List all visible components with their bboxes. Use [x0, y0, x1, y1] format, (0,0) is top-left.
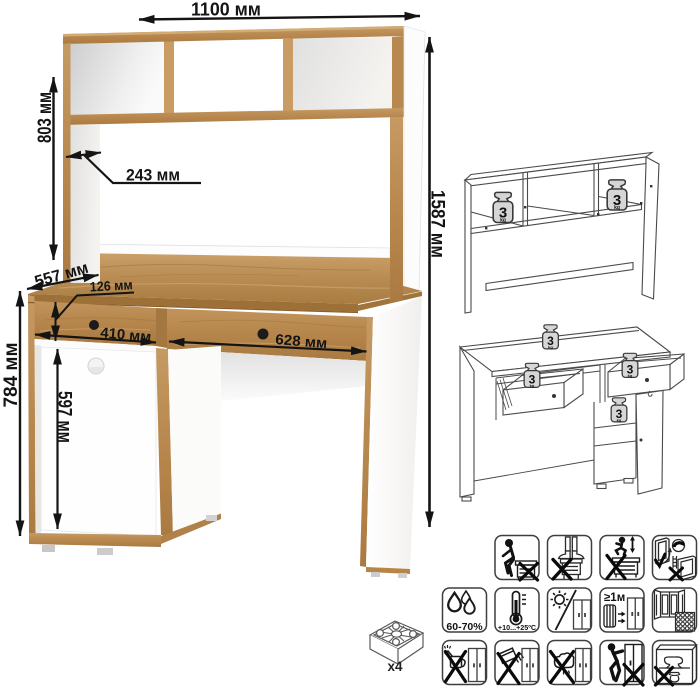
svg-text:803 мм: 803 мм	[34, 92, 56, 143]
svg-text:1100 мм: 1100 мм	[191, 0, 261, 20]
svg-text:1587 мм: 1587 мм	[427, 190, 449, 258]
svg-text:126 мм: 126 мм	[89, 277, 133, 294]
svg-text:597 мм: 597 мм	[54, 391, 75, 443]
svg-text:784 мм: 784 мм	[0, 343, 22, 408]
svg-text:60-70%: 60-70%	[446, 621, 483, 633]
svg-text:+10...+25ºC: +10...+25ºC	[498, 623, 536, 632]
svg-text:x4: x4	[387, 659, 403, 674]
svg-text:243 мм: 243 мм	[126, 166, 180, 185]
svg-text:≥1м: ≥1м	[604, 592, 625, 604]
